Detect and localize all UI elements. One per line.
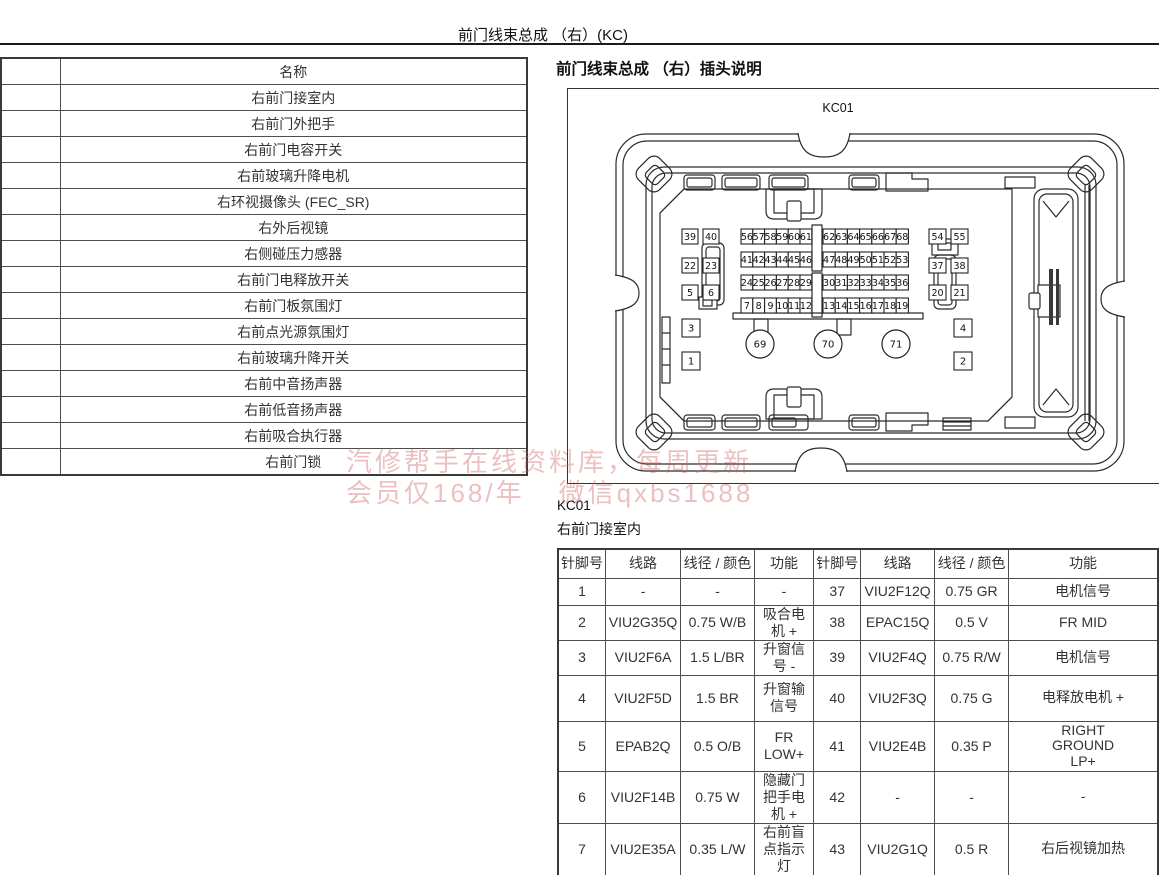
component-code-cell: [1, 215, 60, 241]
component-code-cell: [1, 267, 60, 293]
pin-number: 1: [688, 356, 694, 367]
pin-number: 8: [756, 301, 762, 312]
pin-number: 12: [800, 301, 812, 312]
component-code-cell: [1, 189, 60, 215]
pin-number: 56: [741, 232, 753, 243]
component-name-cell: 右前门板氛围灯: [60, 293, 527, 319]
pin-number: 31: [835, 278, 847, 289]
pin-table-cell: 0.75 R/W: [934, 640, 1008, 675]
pin-number: 51: [872, 255, 884, 266]
pin-number: 32: [847, 278, 859, 289]
pin-table-cell: 0.5 R: [934, 823, 1008, 875]
component-row: 右前门板氛围灯: [1, 293, 527, 319]
pin-table-cell: VIU2F14B: [606, 771, 681, 823]
pin-number: 14: [835, 301, 847, 312]
component-name-cell: 右侧碰压力感器: [60, 241, 527, 267]
component-name-cell: 右前门外把手: [60, 111, 527, 137]
component-name-cell: 右前门电容开关: [60, 137, 527, 163]
pin-table-row: 3VIU2F6A1.5 L/BR升窗信号 -39VIU2F4Q0.75 R/W电…: [558, 640, 1158, 675]
pin-table-cell: 42: [814, 771, 861, 823]
component-row: 右前门电容开关: [1, 137, 527, 163]
pin-number: 43: [764, 255, 776, 266]
pin-number: 69: [754, 340, 767, 351]
pin-header: 针脚号: [558, 549, 606, 578]
pin-number: 2: [960, 356, 966, 367]
component-row: 右环视摄像头 (FEC_SR): [1, 189, 527, 215]
pin-number: 10: [776, 301, 788, 312]
pin-number: 6: [708, 288, 714, 299]
pin-number: 59: [776, 232, 788, 243]
pin-number: 38: [953, 261, 965, 272]
component-code-cell: [1, 293, 60, 319]
pin-table-cell: 4: [558, 675, 606, 721]
pin-table-cell: 5: [558, 721, 606, 771]
component-code-cell: [1, 241, 60, 267]
component-code-header: [1, 58, 60, 85]
pin-table-cell: 0.5 V: [934, 605, 1008, 640]
pin-number: 61: [800, 232, 812, 243]
component-name-cell: 右环视摄像头 (FEC_SR): [60, 189, 527, 215]
pin-table-cell: 39: [814, 640, 861, 675]
pin-number: 71: [890, 340, 903, 351]
pin-table-cell: 隐藏门把手电机 +: [754, 771, 813, 823]
pin-number: 53: [896, 255, 908, 266]
component-row: 右前玻璃升降电机: [1, 163, 527, 189]
pin-number: 26: [764, 278, 776, 289]
component-name-cell: 右前低音扬声器: [60, 397, 527, 423]
pin-number: 13: [823, 301, 835, 312]
pin-table-cell: 3: [558, 640, 606, 675]
pin-number: 55: [953, 232, 965, 243]
component-name-cell: 右外后视镜: [60, 215, 527, 241]
pin-table-cell: 43: [814, 823, 861, 875]
component-row: 右侧碰压力感器: [1, 241, 527, 267]
pin-table-cell: 电机信号: [1009, 578, 1158, 605]
pin-table-cell: 吸合电机 +: [754, 605, 813, 640]
pin-table-cell: 0.75 W/B: [681, 605, 755, 640]
pin-table-cell: -: [681, 578, 755, 605]
pin-table-cell: 7: [558, 823, 606, 875]
section-heading: 前门线束总成 （右）插头说明: [556, 57, 762, 79]
pin-number: 11: [788, 301, 800, 312]
pin-number: 4: [960, 323, 966, 334]
pin-header: 线径 / 颜色: [934, 549, 1008, 578]
pin-number: 9: [767, 301, 773, 312]
pin-table-cell: FR LOW+: [754, 721, 813, 771]
pin-table-cell: 1: [558, 578, 606, 605]
pin-table-header-row: 针脚号 线路 线径 / 颜色 功能 针脚号 线路 线径 / 颜色 功能: [558, 549, 1158, 578]
pin-number: 33: [860, 278, 872, 289]
pin-number: 42: [753, 255, 765, 266]
pin-table-cell: 6: [558, 771, 606, 823]
pin-number: 16: [860, 301, 872, 312]
pin-number: 57: [753, 232, 765, 243]
pin-header: 针脚号: [814, 549, 861, 578]
pin-table-cell: 1.5 L/BR: [681, 640, 755, 675]
pin-table-row: 6VIU2F14B0.75 W隐藏门把手电机 +42---: [558, 771, 1158, 823]
pin-header: 线路: [861, 549, 935, 578]
component-row: 右前中音扬声器: [1, 371, 527, 397]
pin-number: 19: [896, 301, 908, 312]
pin-table-row: 7VIU2E35A0.35 L/W右前盲点指示灯43VIU2G1Q0.5 R右后…: [558, 823, 1158, 875]
pin-number: 47: [823, 255, 835, 266]
pin-number: 54: [931, 232, 943, 243]
figure-location-label: 右前门接室内: [557, 519, 641, 539]
pin-number: 30: [823, 278, 835, 289]
pin-header: 线路: [606, 549, 681, 578]
pin-table-cell: 41: [814, 721, 861, 771]
pin-table: 针脚号 线路 线径 / 颜色 功能 针脚号 线路 线径 / 颜色 功能 1---…: [557, 548, 1159, 875]
pin-table-cell: RIGHT GROUND LP+: [1009, 721, 1158, 771]
pin-number: 50: [860, 255, 872, 266]
component-row: 右前门外把手: [1, 111, 527, 137]
pin-number: 68: [896, 232, 908, 243]
pin-number: 18: [884, 301, 896, 312]
pin-number: 37: [931, 261, 943, 272]
component-code-cell: [1, 85, 60, 111]
pin-number: 3: [688, 323, 694, 334]
title-divider: [0, 43, 1159, 45]
component-row: 右前门接室内: [1, 85, 527, 111]
pin-number: 36: [896, 278, 908, 289]
watermark-price: 会员仅168/年: [346, 478, 525, 508]
pin-table-cell: 40: [814, 675, 861, 721]
pin-number: 25: [753, 278, 765, 289]
component-name-cell: 右前门接室内: [60, 85, 527, 111]
pin-table-cell: -: [861, 771, 935, 823]
pin-table-cell: 右前盲点指示灯: [754, 823, 813, 875]
pin-table-row: 5EPAB2Q0.5 O/BFR LOW+41VIU2E4B0.35 PRIGH…: [558, 721, 1158, 771]
pin-number: 34: [872, 278, 884, 289]
component-code-cell: [1, 137, 60, 163]
pin-table-cell: -: [754, 578, 813, 605]
component-name-cell: 右前门锁: [60, 449, 527, 476]
pin-table-cell: FR MID: [1009, 605, 1158, 640]
component-row: 右前低音扬声器: [1, 397, 527, 423]
pin-table-cell: 升窗信号 -: [754, 640, 813, 675]
pin-table-row: 1---37VIU2F12Q0.75 GR电机信号: [558, 578, 1158, 605]
component-row: 右前门电释放开关: [1, 267, 527, 293]
pin-table-cell: 37: [814, 578, 861, 605]
pin-number: 58: [764, 232, 776, 243]
pin-number: 20: [931, 288, 943, 299]
pin-table-cell: VIU2G35Q: [606, 605, 681, 640]
pin-number: 5: [687, 288, 693, 299]
pin-table-cell: EPAC15Q: [861, 605, 935, 640]
pin-table-cell: 电释放电机 +: [1009, 675, 1158, 721]
pin-table-cell: 右后视镜加热: [1009, 823, 1158, 875]
component-code-cell: [1, 319, 60, 345]
component-name-cell: 右前吸合执行器: [60, 423, 527, 449]
pin-number: 27: [776, 278, 788, 289]
pin-number: 62: [823, 232, 835, 243]
pin-table-cell: -: [1009, 771, 1158, 823]
component-code-cell: [1, 111, 60, 137]
component-row: 右前吸合执行器: [1, 423, 527, 449]
component-name-cell: 右前玻璃升降电机: [60, 163, 527, 189]
pin-number: 46: [800, 255, 812, 266]
pin-table-cell: VIU2F5D: [606, 675, 681, 721]
pin-grid: 5657585960616263646566676841424344454647…: [682, 229, 972, 370]
pin-table-cell: VIU2F4Q: [861, 640, 935, 675]
component-code-cell: [1, 423, 60, 449]
component-name-cell: 右前点光源氛围灯: [60, 319, 527, 345]
component-code-cell: [1, 163, 60, 189]
pin-table-row: 2VIU2G35Q0.75 W/B吸合电机 +38EPAC15Q0.5 VFR …: [558, 605, 1158, 640]
pin-table-cell: 1.5 BR: [681, 675, 755, 721]
pin-number: 35: [884, 278, 896, 289]
pin-table-cell: 0.75 GR: [934, 578, 1008, 605]
pin-number: 44: [776, 255, 788, 266]
pin-number: 40: [705, 232, 717, 243]
pin-table-cell: EPAB2Q: [606, 721, 681, 771]
pin-table-cell: 38: [814, 605, 861, 640]
pin-number: 29: [800, 278, 812, 289]
pin-number: 52: [884, 255, 896, 266]
component-code-cell: [1, 371, 60, 397]
component-row: 右前点光源氛围灯: [1, 319, 527, 345]
pin-number: 21: [953, 288, 965, 299]
pin-number: 39: [684, 232, 696, 243]
pin-table-cell: VIU2E35A: [606, 823, 681, 875]
pin-table-cell: VIU2F6A: [606, 640, 681, 675]
pin-table-cell: 0.5 O/B: [681, 721, 755, 771]
pin-header: 功能: [1009, 549, 1158, 578]
component-table: 名称 右前门接室内右前门外把手右前门电容开关右前玻璃升降电机右环视摄像头 (FE…: [0, 57, 528, 476]
pin-number: 67: [884, 232, 896, 243]
pin-number: 49: [847, 255, 859, 266]
pin-table-cell: 0.35 L/W: [681, 823, 755, 875]
pin-table-cell: 电机信号: [1009, 640, 1158, 675]
pin-number: 48: [835, 255, 847, 266]
component-table-header-row: 名称: [1, 58, 527, 85]
component-code-cell: [1, 345, 60, 371]
pin-number: 60: [788, 232, 800, 243]
pin-table-row: 4VIU2F5D1.5 BR升窗输信号40VIU2F3Q0.75 G电释放电机 …: [558, 675, 1158, 721]
pin-number: 70: [822, 340, 835, 351]
pin-number: 15: [847, 301, 859, 312]
pin-number: 65: [860, 232, 872, 243]
pin-number: 7: [744, 301, 750, 312]
connector-drawing: 5657585960616263646566676841424344454647…: [568, 89, 1159, 483]
page-title: 前门线束总成 （右）(KC): [383, 24, 703, 45]
component-name-cell: 右前门电释放开关: [60, 267, 527, 293]
component-row: 右前玻璃升降开关: [1, 345, 527, 371]
pin-number: 45: [788, 255, 800, 266]
pin-table-cell: 0.35 P: [934, 721, 1008, 771]
component-code-cell: [1, 397, 60, 423]
pin-table-cell: VIU2E4B: [861, 721, 935, 771]
connector-figure: KC01: [567, 88, 1159, 484]
pin-number: 17: [872, 301, 884, 312]
component-name-cell: 右前中音扬声器: [60, 371, 527, 397]
component-name-cell: 右前玻璃升降开关: [60, 345, 527, 371]
pin-table-cell: VIU2F3Q: [861, 675, 935, 721]
pin-number: 28: [788, 278, 800, 289]
pin-table-cell: VIU2F12Q: [861, 578, 935, 605]
pin-table-cell: 2: [558, 605, 606, 640]
component-row: 右外后视镜: [1, 215, 527, 241]
figure-code-label: KC01: [557, 498, 591, 513]
pin-table-cell: -: [606, 578, 681, 605]
pin-number: 23: [705, 261, 717, 272]
pin-number: 64: [847, 232, 859, 243]
pin-header: 线径 / 颜色: [681, 549, 755, 578]
pin-number: 66: [872, 232, 884, 243]
pin-number: 22: [684, 261, 696, 272]
pin-table-cell: 升窗输信号: [754, 675, 813, 721]
component-row: 右前门锁: [1, 449, 527, 476]
manual-page: 前门线束总成 （右）(KC) 名称 右前门接室内右前门外把手右前门电容开关右前玻…: [0, 0, 1159, 875]
component-code-cell: [1, 449, 60, 476]
pin-table-cell: VIU2G1Q: [861, 823, 935, 875]
component-name-header: 名称: [60, 58, 527, 85]
pin-number: 24: [741, 278, 753, 289]
pin-number: 41: [741, 255, 753, 266]
pin-number: 63: [835, 232, 847, 243]
pin-table-cell: 0.75 G: [934, 675, 1008, 721]
pin-table-cell: 0.75 W: [681, 771, 755, 823]
pin-table-cell: -: [934, 771, 1008, 823]
pin-header: 功能: [754, 549, 813, 578]
